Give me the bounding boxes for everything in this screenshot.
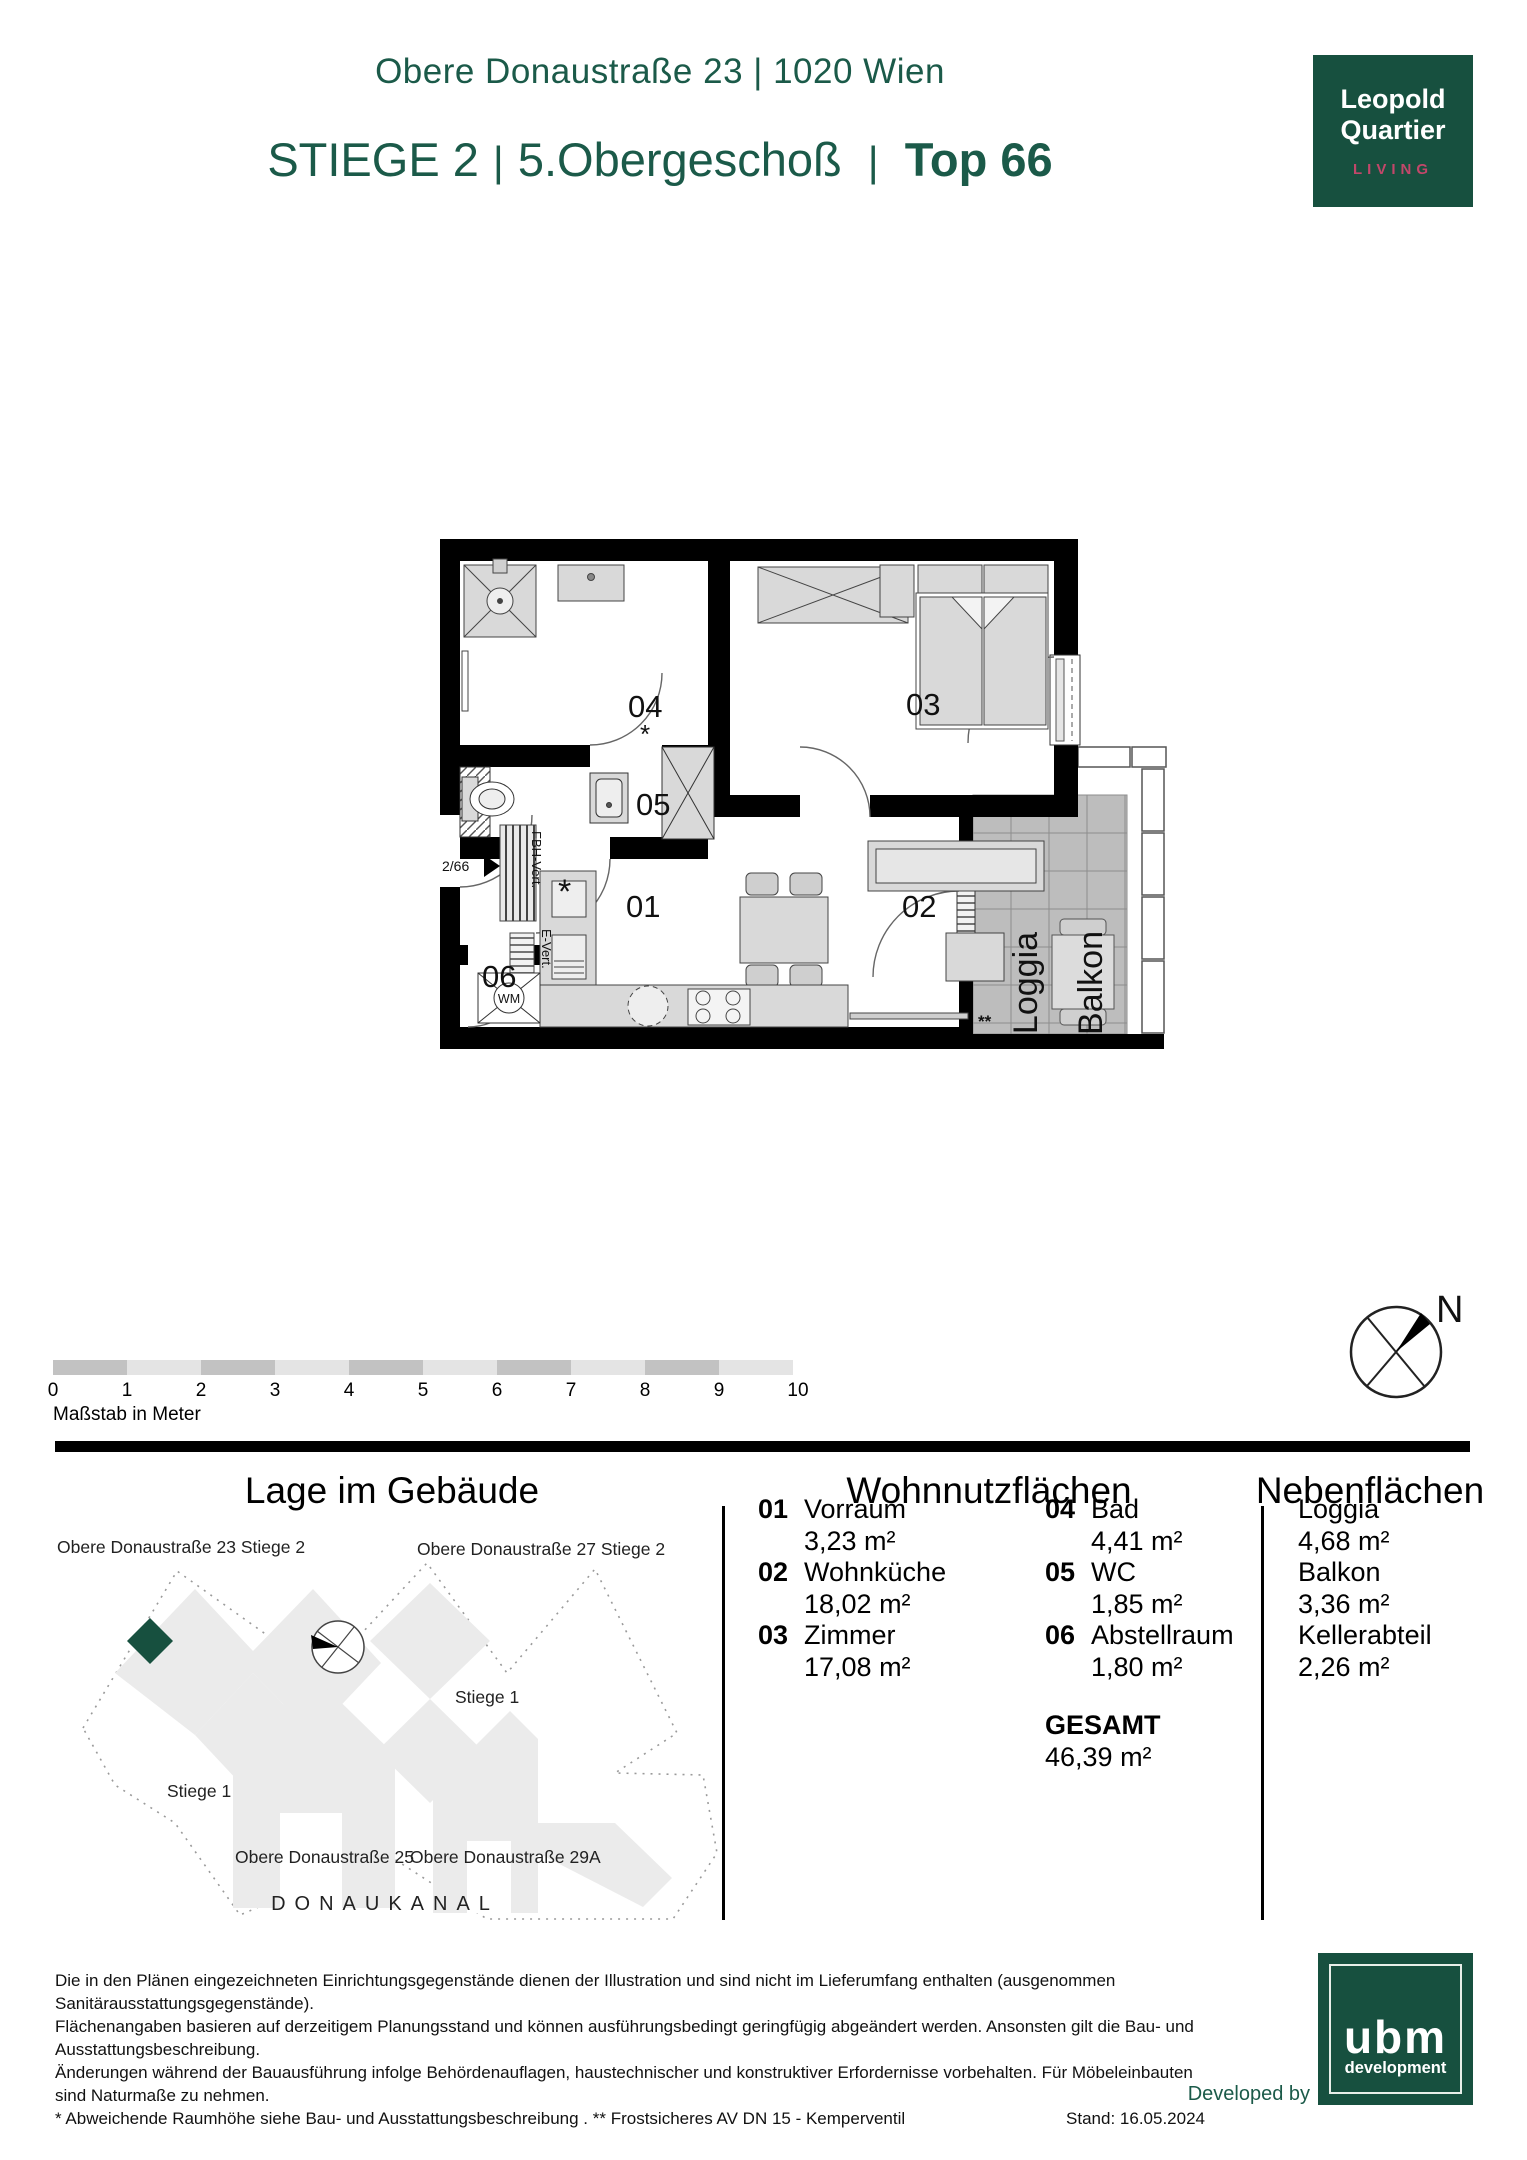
developed-by-label: Developed by (1130, 2083, 1310, 2106)
address-line: Obere Donaustraße 23 | 1020 Wien (10, 52, 1310, 92)
compass-needle-icon (1396, 1313, 1430, 1352)
secondary-area: 3,36 m² (1298, 1589, 1432, 1621)
scale-segment (53, 1360, 127, 1375)
room-label-05: 05 (636, 787, 670, 822)
stiege-label: STIEGE 2 (267, 133, 479, 186)
scale-tick: 10 (787, 1380, 808, 1402)
scale-tick: 1 (122, 1380, 133, 1402)
secondary-item: Loggia 4,68 m² (1298, 1494, 1432, 1557)
room-name: Vorraum (804, 1494, 906, 1524)
secondary-area: 4,68 m² (1298, 1526, 1432, 1558)
room-item: 04Bad 4,41 m² (1045, 1494, 1234, 1557)
loggia-label: Loggia (1007, 932, 1045, 1034)
bedroom-door-arc (800, 747, 870, 817)
ubm-sub: development (1345, 2059, 1447, 2078)
unit-title: STIEGE 2|5.Obergeschoß|Top 66 (10, 132, 1310, 187)
logo-living: LIVING (1353, 161, 1433, 178)
bathroom-fixtures (462, 559, 624, 711)
scale-segment (645, 1360, 719, 1375)
list-divider-left (722, 1506, 725, 1920)
site-label-stiege1-right: Stiege 1 (455, 1687, 519, 1707)
disclaimer-line2: Flächenangaben basieren auf derzeitigem … (55, 2015, 1205, 2061)
room-name: Abstellraum (1091, 1620, 1234, 1650)
room-name: Bad (1091, 1494, 1139, 1524)
north-compass: N (1336, 1282, 1486, 1417)
room-area: 3,23 m² (758, 1526, 946, 1558)
room-area: 1,80 m² (1045, 1652, 1234, 1684)
fbh-label: FBH-Vert. (529, 831, 544, 888)
scale-segment (201, 1360, 275, 1375)
room-name: Zimmer (804, 1620, 895, 1650)
section-divider (55, 1441, 1470, 1452)
room-name: Wohnküche (804, 1557, 946, 1587)
secondary-name: Loggia (1298, 1494, 1432, 1526)
separator: | (842, 138, 905, 185)
double-asterisk-note: ** (978, 1012, 992, 1031)
site-label-b27: Obere Donaustraße 27 Stiege 2 (417, 1539, 665, 1559)
scale-segment (349, 1360, 423, 1375)
logo-line1: Leopold (1341, 84, 1446, 115)
room-item: 01Vorraum 3,23 m² (758, 1494, 946, 1557)
site-label-canal: DONAUKANAL (271, 1893, 499, 1915)
floor-plan-sheet: Obere Donaustraße 23 | 1020 Wien STIEGE … (0, 0, 1527, 2160)
disclaimer-line1: Die in den Plänen eingezeichneten Einric… (55, 1969, 1205, 2015)
balkon-label: Balkon (1072, 931, 1110, 1035)
scale-tick: 4 (344, 1380, 355, 1402)
footer-disclaimer: Die in den Plänen eingezeichneten Einric… (55, 1969, 1205, 2130)
room-list-col2: 04Bad 4,41 m² 05WC 1,85 m² 06Abstellraum… (1045, 1494, 1234, 1773)
secondary-item: Balkon 3,36 m² (1298, 1557, 1432, 1620)
room-name: WC (1091, 1557, 1136, 1587)
stand-date: Stand: 16.05.2024 (1066, 2107, 1205, 2130)
bedroom-furniture (758, 565, 1048, 729)
disclaimer-line4: * Abweichende Raumhöhe siehe Bau- und Au… (55, 2107, 905, 2130)
site-label-b25: Obere Donaustraße 25 (235, 1847, 414, 1867)
floor-plan-drawing: Loggia Balkon ** (440, 515, 1170, 1060)
scale-tick: 7 (566, 1380, 577, 1402)
scale-tick: 8 (640, 1380, 651, 1402)
room-list-col1: 01Vorraum 3,23 m² 02Wohnküche 18,02 m² 0… (758, 1494, 946, 1683)
kitchen-asterisk: * (558, 873, 571, 911)
scale-tick: 3 (270, 1380, 281, 1402)
scale-tick: 5 (418, 1380, 429, 1402)
room-item: 05WC 1,85 m² (1045, 1557, 1234, 1620)
secondary-list: Loggia 4,68 m² Balkon 3,36 m² Kellerabte… (1298, 1494, 1432, 1683)
room-nr: 03 (758, 1620, 804, 1652)
room-label-06: 06 (482, 959, 516, 994)
ubm-logo-frame: ubm development (1329, 1964, 1462, 2094)
scale-tick: 2 (196, 1380, 207, 1402)
scale-bar: 0 1 2 3 4 5 6 7 8 9 10 Maßstab in Meter (53, 1360, 813, 1430)
scale-segment (275, 1360, 349, 1375)
north-label: N (1436, 1289, 1463, 1331)
site-title: Lage im Gebäude (142, 1470, 642, 1512)
room-item: 06Abstellraum 1,80 m² (1045, 1620, 1234, 1683)
site-plan: Obere Donaustraße 23 Stiege 2 Obere Dona… (55, 1523, 745, 1938)
room-area: 1,85 m² (1045, 1589, 1234, 1621)
room-label-01: 01 (626, 889, 660, 924)
room-nr: 04 (1045, 1494, 1091, 1526)
floor-label: 5.Obergeschoß (518, 133, 842, 186)
room-label-02: 02 (902, 889, 936, 924)
scale-tick: 0 (48, 1380, 59, 1402)
scale-segment (423, 1360, 497, 1375)
ubm-wordmark: ubm (1344, 2017, 1447, 2057)
room-nr: 06 (1045, 1620, 1091, 1652)
room-nr: 01 (758, 1494, 804, 1526)
room-04-asterisk: * (640, 719, 650, 749)
ubm-logo: ubm development (1318, 1953, 1473, 2105)
scale-segment (127, 1360, 201, 1375)
scale-segment (571, 1360, 645, 1375)
scale-bar-track (53, 1360, 793, 1375)
header: Obere Donaustraße 23 | 1020 Wien STIEGE … (10, 52, 1310, 187)
site-label-stiege1-left: Stiege 1 (167, 1781, 231, 1801)
site-label-b29a: Obere Donaustraße 29A (410, 1847, 601, 1867)
wm-label: WM (498, 992, 520, 1006)
total-block: GESAMT 46,39 m² (1045, 1710, 1234, 1773)
site-label-b23: Obere Donaustraße 23 Stiege 2 (57, 1537, 305, 1557)
room-label-03: 03 (906, 687, 940, 722)
total-area: 46,39 m² (1045, 1742, 1234, 1774)
top-number: Top 66 (905, 133, 1053, 186)
total-label: GESAMT (1045, 1710, 1234, 1742)
logo-line2: Quartier (1340, 115, 1445, 146)
secondary-name: Kellerabteil (1298, 1620, 1432, 1652)
secondary-area: 2,26 m² (1298, 1652, 1432, 1684)
scale-tick: 6 (492, 1380, 503, 1402)
scale-caption: Maßstab in Meter (53, 1404, 201, 1426)
room-area: 17,08 m² (758, 1652, 946, 1684)
scale-segment (497, 1360, 571, 1375)
entrance-label: 2/66 (442, 858, 469, 874)
room-area: 4,41 m² (1045, 1526, 1234, 1558)
room-item: 03Zimmer 17,08 m² (758, 1620, 946, 1683)
secondary-item: Kellerabteil 2,26 m² (1298, 1620, 1432, 1683)
room-nr: 05 (1045, 1557, 1091, 1589)
room-nr: 02 (758, 1557, 804, 1589)
leopold-quartier-logo: Leopold Quartier LIVING (1313, 55, 1473, 207)
scale-segment (719, 1360, 793, 1375)
floor-plan: Loggia Balkon ** (440, 515, 1170, 1065)
list-divider-right (1261, 1506, 1264, 1920)
site-compass (311, 1621, 364, 1673)
disclaimer-line3: Änderungen während der Bauausführung inf… (55, 2061, 1205, 2107)
evert-label: E-Vert. (539, 929, 554, 969)
secondary-name: Balkon (1298, 1557, 1432, 1589)
separator: | (479, 138, 518, 185)
scale-tick: 9 (714, 1380, 725, 1402)
room-area: 18,02 m² (758, 1589, 946, 1621)
room-item: 02Wohnküche 18,02 m² (758, 1557, 946, 1620)
